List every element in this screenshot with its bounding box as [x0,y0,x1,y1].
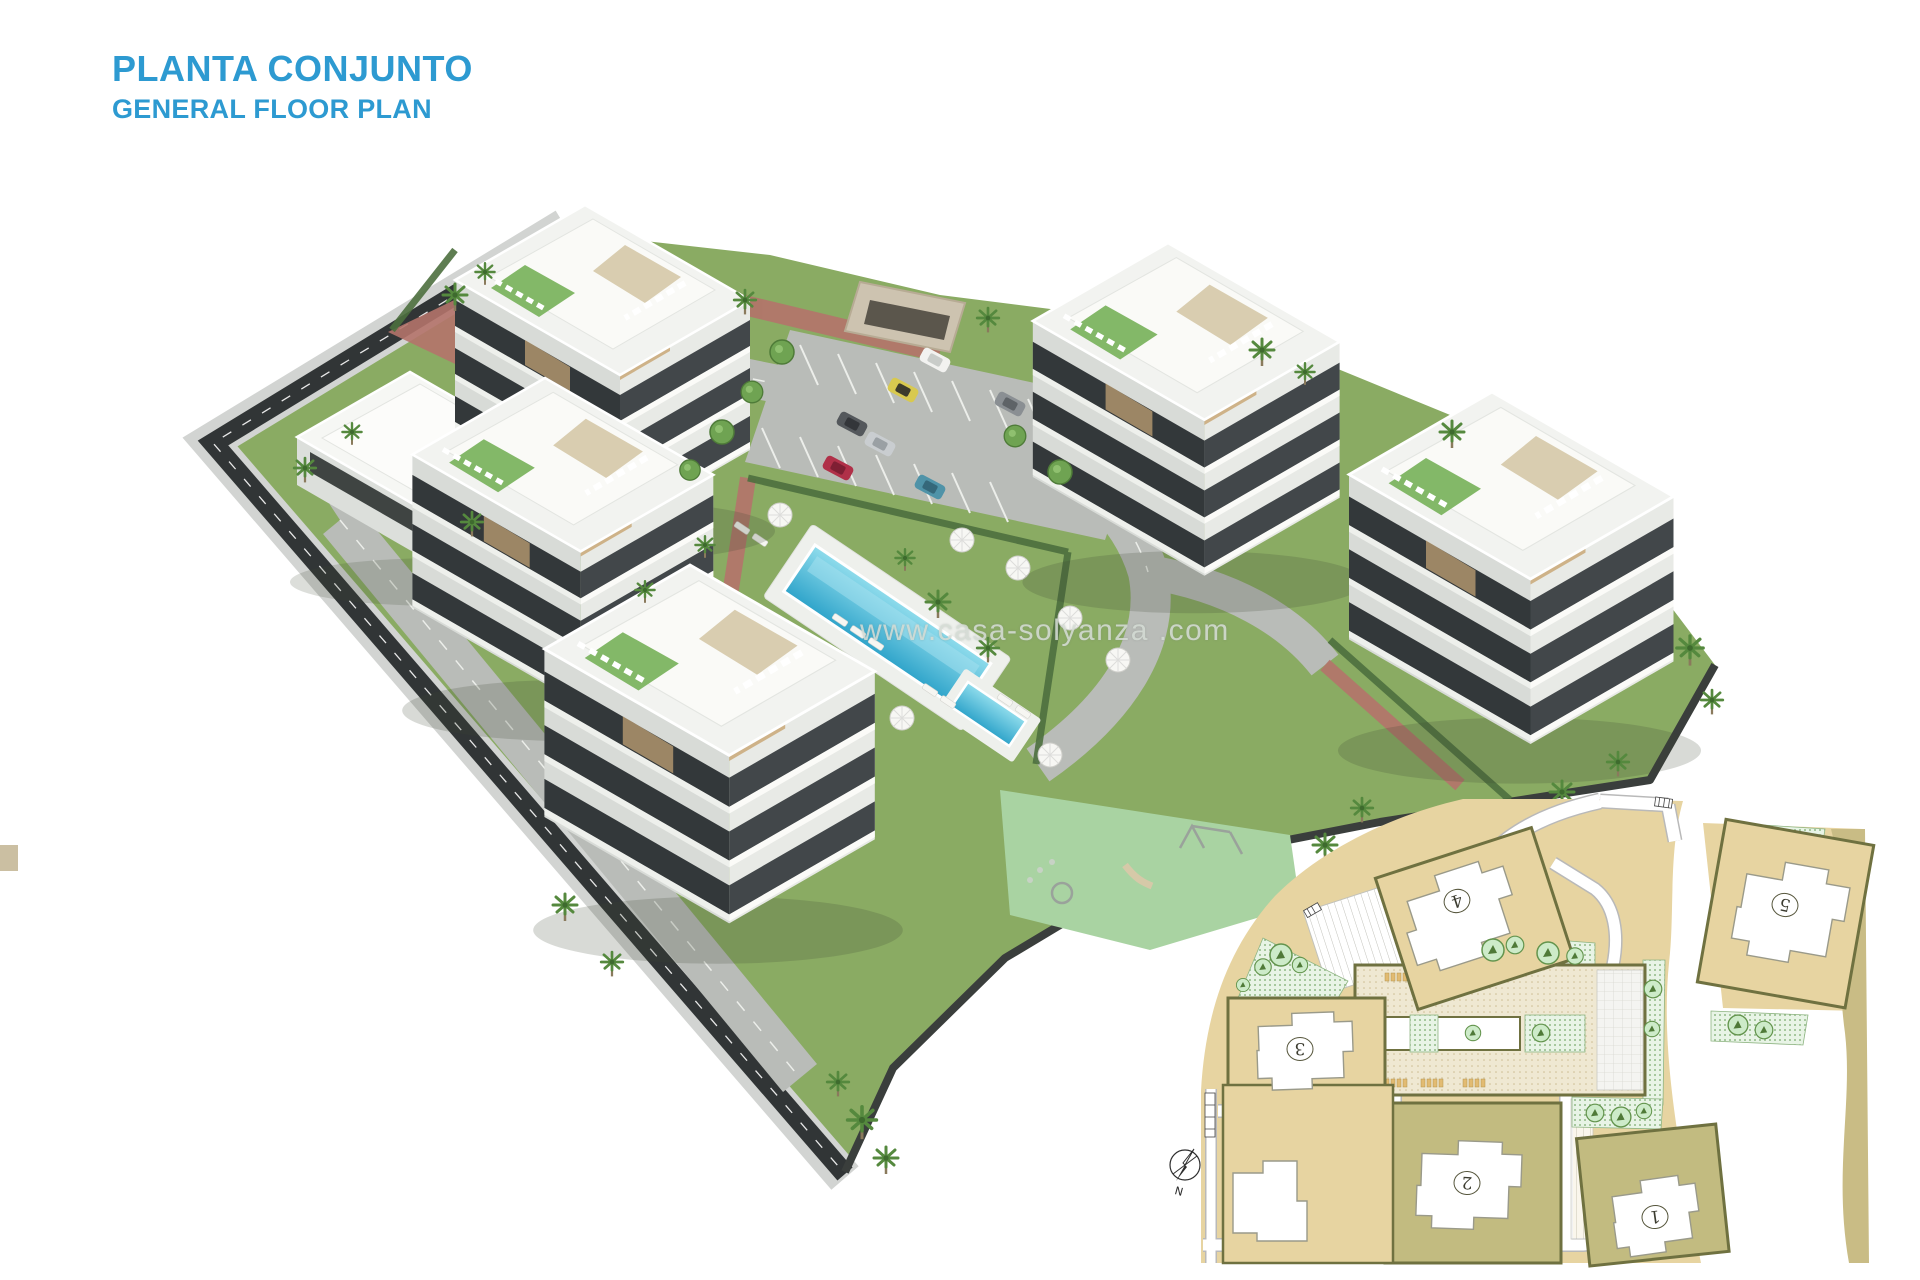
inset-pool [1370,1017,1520,1050]
site-plan-inset: 1 2 3 4 5 [1163,793,1888,1268]
compass-north-label: N [1173,1183,1184,1198]
play-tower [0,845,18,871]
compass-icon: N [1170,1149,1200,1198]
inset-clubhouse-footprint [1233,1161,1307,1241]
inset-building-3-number: 3 [1295,1038,1306,1058]
inset-pool-block [1355,965,1645,1095]
inset-building-2-number: 2 [1461,1172,1473,1193]
page: PLANTA CONJUNTO GENERAL FLOOR PLAN [0,0,1920,1280]
